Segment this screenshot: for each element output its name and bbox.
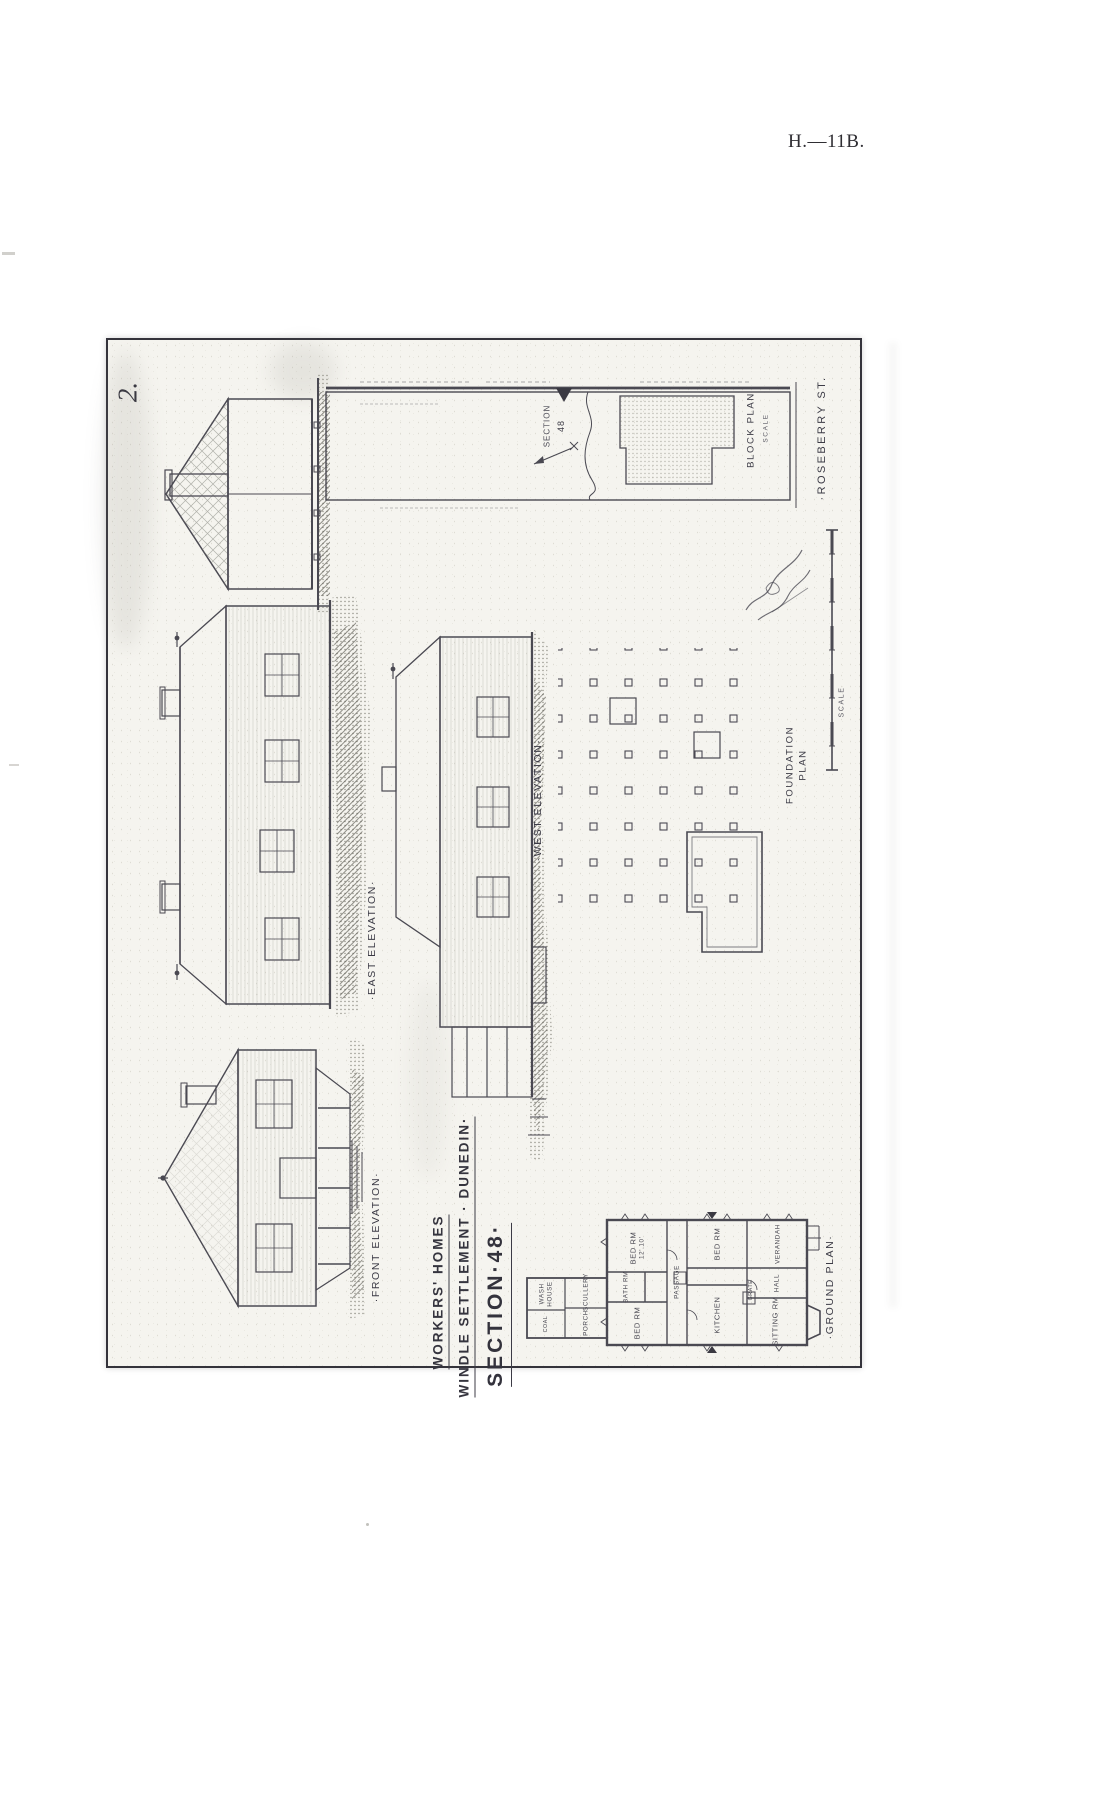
room-label-scullery: SCULLERY (583, 1273, 590, 1311)
section-drawing (158, 374, 330, 614)
room-name: VERANDAH (775, 1224, 782, 1264)
foundation-plan-label-word2: PLAN (798, 749, 809, 780)
room-label-hall: HALL (774, 1274, 781, 1292)
scanned-page: H.—11B. 2. (0, 0, 1114, 1795)
room-name: HALL (774, 1274, 781, 1292)
block-plan-label: BLOCK PLAN (746, 392, 757, 468)
title-line-1: WORKERS' HOMES (431, 1215, 450, 1370)
weatherboards (227, 607, 329, 1003)
foundation-plan-label-word1: FOUNDATION (785, 726, 796, 804)
west-elevation-label: ·WEST ELEVATION· (532, 738, 544, 861)
room-name: BED RM (633, 1307, 642, 1340)
room-name-word2: HOUSE (547, 1281, 554, 1306)
bay-window (807, 1305, 820, 1340)
room-label-bed1: BED RM 12'.10' (629, 1232, 646, 1265)
street-label: ·ROSEBERRY ST. (816, 376, 828, 501)
room-label-bed3: BED RM (713, 1228, 722, 1261)
chimney (382, 767, 396, 791)
ground-plan-label: ·GROUND PLAN· (824, 1235, 836, 1340)
weatherboards (441, 638, 531, 1026)
room-size: 12'.10' (639, 1237, 646, 1259)
room-name: PASSAGE (674, 1265, 681, 1299)
east-elevation-label: ·EAST ELEVATION· (366, 880, 378, 1000)
paper-number: H.—11B. (788, 131, 865, 153)
room-name: KITCHEN (713, 1296, 722, 1333)
handwritten-note (736, 492, 816, 622)
foundation-plan-drawing (552, 640, 777, 965)
ridge-finial (175, 632, 180, 647)
room-name: BED RM (629, 1232, 638, 1265)
east-elevation-drawing (160, 592, 385, 1017)
margin-mark (9, 764, 19, 766)
block-plan-drawing (320, 352, 798, 524)
room-name: SITTING RM (771, 1296, 780, 1345)
roof-texture (164, 1050, 238, 1306)
scale-bar (822, 524, 842, 776)
room-name: COAL (543, 1316, 549, 1333)
scale-bar-label: SCALE (839, 687, 846, 718)
weatherboards (239, 1051, 315, 1305)
room-label-washhouse: WASH HOUSE (539, 1281, 554, 1306)
drawing-plate: 2. (106, 338, 862, 1368)
north-arrow (534, 442, 578, 464)
margin-mark (2, 252, 15, 255)
west-elevation-drawing (382, 617, 552, 1172)
room-label-verandah: VERANDAH (775, 1224, 782, 1264)
front-elevation-drawing (158, 1028, 368, 1328)
stray-dot (366, 1523, 369, 1526)
roof-framing (166, 399, 228, 589)
verandah (452, 1027, 532, 1097)
room-label-porch: PORCH (583, 1310, 590, 1336)
room-name: PORCH (583, 1310, 590, 1336)
pier-grid (558, 648, 758, 916)
room-label-bath: BATH RM (623, 1271, 630, 1303)
room-name: GRATE (748, 1280, 754, 1301)
lot-section-number: 48 (556, 420, 566, 432)
room-label-sitting: SITTING RM (771, 1296, 780, 1345)
room-name-word1: WASH (539, 1283, 546, 1304)
verandah (316, 1068, 350, 1290)
survey-triangle-marker (556, 388, 572, 402)
title-line-2: WINDLE SETTLEMENT · DUNEDIN· (457, 1117, 476, 1398)
ridge-finial (175, 964, 180, 980)
front-elevation-label: ·FRONT ELEVATION· (370, 1172, 382, 1302)
title-line-3: SECTION·48· (484, 1223, 512, 1387)
room-label-passage: PASSAGE (674, 1265, 681, 1299)
roof-slope (180, 606, 226, 1004)
room-label-grate: GRATE (748, 1280, 754, 1301)
verandah-steps (807, 1226, 821, 1250)
block-plan-scale-label: SCALE (763, 413, 770, 442)
lot-section-word: SECTION (543, 405, 552, 448)
room-name: SCULLERY (583, 1273, 590, 1311)
footprint-shading (620, 396, 734, 484)
roof-slope (396, 637, 440, 947)
room-name: BATH RM (623, 1271, 630, 1303)
scan-streak (886, 342, 900, 1308)
ridge-finial (391, 663, 396, 679)
room-label-coal: COAL (543, 1316, 549, 1333)
plate-number-handwritten: 2. (113, 382, 144, 402)
room-label-kitchen: KITCHEN (713, 1296, 722, 1333)
creek-line (585, 392, 595, 500)
room-name: BED RM (713, 1228, 722, 1261)
room-label-bed2: BED RM (633, 1307, 642, 1340)
